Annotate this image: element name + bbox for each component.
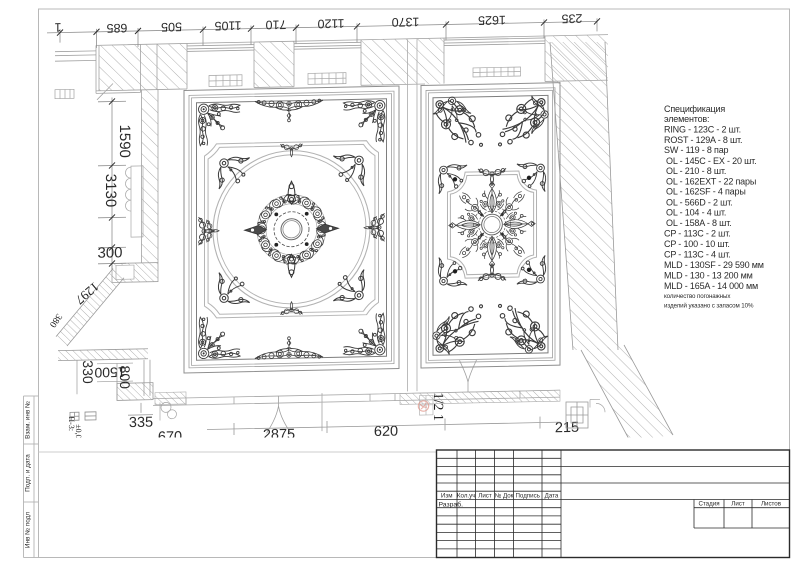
svg-text:685: 685 — [107, 21, 128, 35]
svg-text:1370: 1370 — [392, 15, 420, 30]
svg-text:OL - 145C - EX - 20 шт.: OL - 145C - EX - 20 шт. — [666, 156, 756, 166]
svg-text:Спецификация: Спецификация — [664, 104, 725, 114]
svg-text:300: 300 — [97, 244, 122, 262]
svg-text:1590: 1590 — [116, 124, 133, 158]
svg-text:1105: 1105 — [215, 18, 242, 33]
svg-text:Листов: Листов — [761, 501, 782, 508]
svg-text:Разраб.: Разраб. — [439, 500, 464, 508]
svg-text:Подпись: Подпись — [515, 493, 540, 500]
svg-text:Дата: Дата — [545, 493, 559, 500]
svg-text:RING - 123C - 2 шт.: RING - 123C - 2 шт. — [664, 124, 741, 134]
svg-text:Стадия: Стадия — [698, 501, 719, 508]
svg-text:OL - 158A - 8 шт.: OL - 158A - 8 шт. — [666, 218, 731, 228]
svg-text:Инв № подл: Инв № подл — [25, 512, 32, 549]
svg-text:Взам. инв №: Взам. инв № — [25, 401, 32, 439]
svg-text:MLD - 130SF - 29 590 мм: MLD - 130SF - 29 590 мм — [664, 260, 764, 270]
svg-text:3130: 3130 — [102, 174, 119, 208]
svg-text:MLD - 130 - 13 200 мм: MLD - 130 - 13 200 мм — [664, 271, 753, 281]
svg-text:335: 335 — [129, 415, 153, 432]
svg-text:OL - 162SF - 4 пары: OL - 162SF - 4 пары — [666, 187, 746, 197]
svg-text:1625: 1625 — [478, 13, 506, 28]
svg-text:ROST - 129A - 8 шт.: ROST - 129A - 8 шт. — [664, 135, 742, 145]
svg-text:CP - 100 - 10 шт.: CP - 100 - 10 шт. — [664, 239, 730, 249]
svg-text:Лист: Лист — [731, 501, 745, 508]
svg-text:Изм: Изм — [441, 493, 453, 500]
svg-text:Подп. и дата: Подп. и дата — [25, 454, 32, 492]
svg-text:количество погонажных: количество погонажных — [664, 293, 731, 300]
svg-text:±0,0: ±0,0 — [74, 424, 83, 439]
svg-text:OL - 162EXT - 22 пары: OL - 162EXT - 22 пары — [666, 177, 756, 187]
svg-text:330: 330 — [80, 360, 96, 384]
svg-text:SW - 119 - 8 пар: SW - 119 - 8 пар — [664, 145, 729, 155]
svg-text:OL - 210 - 8 шт.: OL - 210 - 8 шт. — [666, 166, 726, 176]
svg-text:1120: 1120 — [318, 16, 345, 31]
svg-text:800: 800 — [117, 365, 133, 389]
svg-text:710: 710 — [266, 17, 287, 31]
svg-text:элементов:: элементов: — [664, 114, 709, 124]
svg-text:1/2 1: 1/2 1 — [430, 392, 445, 421]
svg-text:CP - 113C - 4 шт.: CP - 113C - 4 шт. — [664, 249, 730, 259]
svg-text:№ Док: № Док — [495, 493, 514, 500]
svg-text:изделий указано с запасом 10%: изделий указано с запасом 10% — [664, 303, 754, 310]
svg-text:Лист: Лист — [478, 493, 492, 500]
svg-text:1: 1 — [54, 20, 61, 34]
svg-text:OL - 104 - 4 шт.: OL - 104 - 4 шт. — [666, 208, 726, 218]
svg-text:OL - 566D - 2 шт.: OL - 566D - 2 шт. — [666, 197, 732, 207]
svg-text:235: 235 — [562, 11, 583, 25]
svg-text:MLD - 165A - 14 000 мм: MLD - 165A - 14 000 мм — [664, 281, 758, 291]
svg-text:CP - 113C - 2 шт.: CP - 113C - 2 шт. — [664, 229, 730, 239]
svg-text:505: 505 — [161, 20, 182, 34]
svg-text:Кол.уч: Кол.уч — [457, 493, 476, 500]
